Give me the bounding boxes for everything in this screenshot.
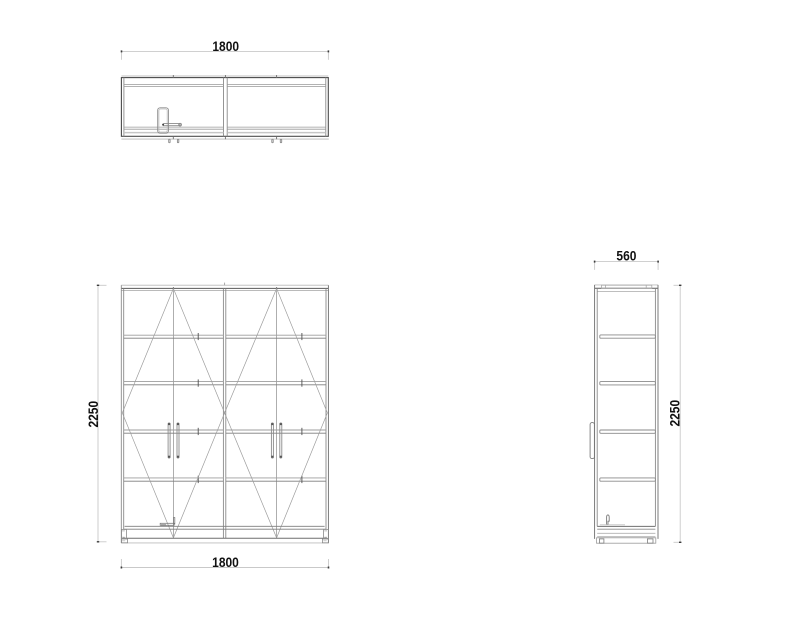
svg-text:2250: 2250 — [85, 401, 101, 428]
svg-text:1800: 1800 — [212, 554, 239, 570]
svg-text:2250: 2250 — [667, 400, 683, 427]
svg-text:1800: 1800 — [212, 38, 239, 54]
svg-text:560: 560 — [616, 248, 636, 264]
